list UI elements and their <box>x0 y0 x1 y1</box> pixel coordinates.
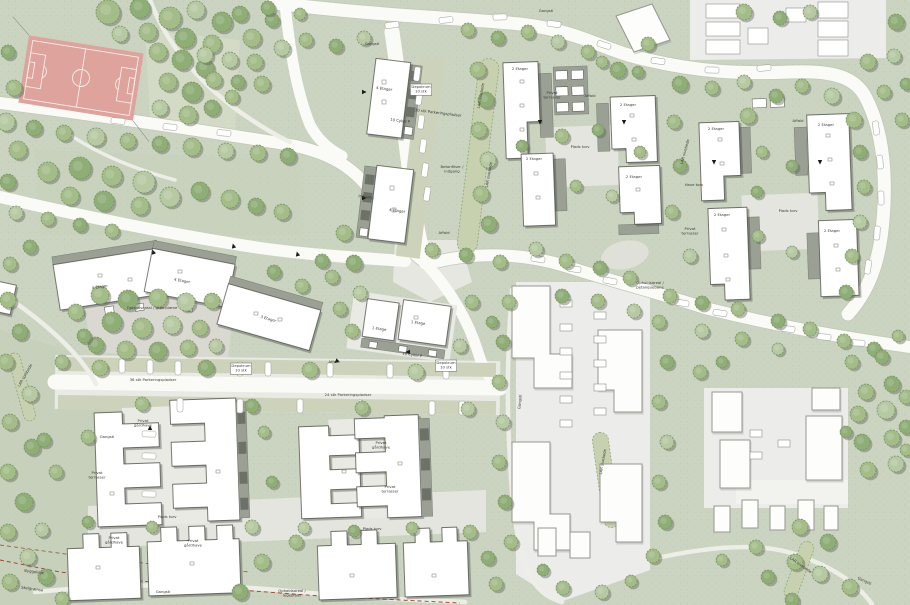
roof-panel <box>706 4 740 18</box>
roof-panel <box>560 324 572 331</box>
roof-panel <box>96 566 100 569</box>
roof-panel <box>520 104 524 107</box>
svg-text:Affald: Affald <box>792 118 804 123</box>
shed <box>572 86 584 95</box>
car <box>817 334 831 341</box>
car <box>177 398 183 412</box>
car <box>175 361 181 375</box>
roof-panel <box>826 134 830 137</box>
shed <box>359 228 368 237</box>
map-label: 2 Etager <box>620 102 637 107</box>
outline-building <box>806 416 842 480</box>
roof-panel <box>560 420 572 427</box>
car <box>142 453 156 459</box>
building-wing <box>553 159 567 211</box>
building-wing <box>619 223 659 234</box>
map-label: Gangsti <box>156 589 171 594</box>
car <box>237 399 243 413</box>
map-label: 2 Etager <box>512 66 529 71</box>
outline-building <box>712 392 742 432</box>
map-label: 24 stk Parkeringspladser <box>325 392 372 397</box>
roof-panel <box>706 22 740 36</box>
roof-panel <box>818 40 848 56</box>
car <box>874 226 881 240</box>
svg-text:Plads torv: Plads torv <box>158 514 178 519</box>
roof-panel <box>594 360 606 367</box>
car <box>142 431 156 437</box>
svg-text:2 Etager: 2 Etager <box>818 122 835 127</box>
roof-panel <box>720 162 724 165</box>
map-label: Opholdsareal /petanquebane <box>636 280 664 289</box>
outline-building-small <box>742 500 758 528</box>
map-label: 2 Etager <box>708 126 725 131</box>
roof-panel <box>534 172 538 175</box>
map-label: Gangsti <box>539 8 554 13</box>
building <box>94 411 162 527</box>
roof-panel <box>254 312 258 315</box>
car <box>387 364 393 378</box>
roof-panel <box>350 574 354 577</box>
building <box>354 415 422 519</box>
map-label: 36 stk Parkeringspladser <box>130 377 177 382</box>
svg-text:Affald: Affald <box>584 93 596 98</box>
svg-text:36 stk Parkeringspladser: 36 stk Parkeringspladser <box>130 377 177 382</box>
car <box>493 14 507 20</box>
car <box>877 155 884 169</box>
map-label: Plads torv <box>158 514 178 519</box>
roof-panel <box>718 138 722 141</box>
map-label: Opholdsareal / grøn plæne <box>127 305 178 310</box>
svg-text:Gangsti: Gangsti <box>100 434 115 439</box>
car <box>217 130 231 137</box>
map-label: 2 Etager <box>714 212 731 217</box>
svg-text:Gangsti: Gangsti <box>365 41 380 46</box>
svg-text:2 Etager: 2 Etager <box>626 174 643 179</box>
map-label: 2 Etager <box>818 122 835 127</box>
shed <box>404 126 413 135</box>
roof-panel <box>398 462 402 465</box>
map-label: Have torv <box>685 182 704 187</box>
svg-text:2 Etager: 2 Etager <box>526 156 543 161</box>
car <box>297 399 303 413</box>
roof-panel <box>190 562 194 565</box>
map-label: Affald <box>584 93 596 98</box>
street-bottom-parking <box>55 382 500 388</box>
outline-building-small <box>824 506 838 530</box>
car <box>757 65 771 72</box>
car <box>265 362 271 376</box>
roof-panel <box>382 80 386 84</box>
roof-panel <box>836 268 840 271</box>
svg-text:2 Etager: 2 Etager <box>824 228 841 233</box>
roof-panel <box>818 2 848 18</box>
map-label: Affald <box>328 359 340 364</box>
roof-panel <box>594 408 606 415</box>
svg-text:Have torv: Have torv <box>685 182 704 187</box>
roof-panel <box>830 182 834 185</box>
roof-panel <box>828 158 832 161</box>
roof-panel <box>722 228 726 231</box>
roof-panel <box>560 396 572 403</box>
svg-text:2 Etager: 2 Etager <box>512 66 529 71</box>
shed <box>556 103 568 112</box>
map-label: 2 Etager <box>824 228 841 233</box>
car <box>705 67 719 73</box>
car <box>439 16 453 23</box>
outline-building <box>720 440 750 488</box>
roof-panel <box>342 470 346 473</box>
building-combs-left <box>94 398 250 527</box>
building <box>147 525 241 596</box>
roof-panel <box>390 186 394 190</box>
map-label: Plads torv <box>363 526 383 531</box>
roof-panel <box>128 278 132 281</box>
roof-panel <box>216 470 220 473</box>
svg-text:2 Etager: 2 Etager <box>620 102 637 107</box>
svg-text:Plads torv: Plads torv <box>779 208 799 213</box>
svg-text:Affald: Affald <box>328 359 340 364</box>
shed <box>571 70 583 79</box>
roof-panel <box>520 128 524 131</box>
car <box>142 491 156 497</box>
roof-panel <box>724 254 728 257</box>
roof-panel <box>278 318 282 321</box>
car <box>327 363 333 377</box>
roof-panel <box>748 28 768 44</box>
svg-text:2 Etager: 2 Etager <box>714 212 731 217</box>
roof-panel <box>536 196 540 199</box>
map-label: Affald <box>438 230 450 235</box>
svg-text:Opholdsareal / grøn plæne: Opholdsareal / grøn plæne <box>127 305 178 310</box>
site-plan-canvas: GangstiGangstiGangstiGangstiGangstiGangs… <box>0 0 910 605</box>
outline-building <box>812 388 840 410</box>
roof-panel <box>594 384 606 391</box>
svg-text:2 Etager: 2 Etager <box>708 126 725 131</box>
roof-panel <box>726 278 730 281</box>
outline-building-small <box>770 506 785 530</box>
car <box>119 359 125 373</box>
roof-panel <box>432 574 436 577</box>
shed <box>428 350 437 357</box>
map-label: Gangsti <box>100 434 115 439</box>
map-label: Plads torv <box>571 144 591 149</box>
roof-panel <box>630 114 634 117</box>
car <box>111 117 125 124</box>
svg-text:Plads torv: Plads torv <box>363 526 383 531</box>
roof-panel <box>818 21 848 37</box>
shed <box>752 98 766 107</box>
roof-panel <box>750 452 762 459</box>
outline-building-small <box>570 532 590 558</box>
svg-text:24 stk Parkeringspladser: 24 stk Parkeringspladser <box>325 392 372 397</box>
building <box>170 398 240 522</box>
roof-panel <box>594 336 606 343</box>
roof-panel <box>594 312 606 319</box>
map-label: 2 Etager <box>626 174 643 179</box>
building <box>299 425 362 519</box>
site-plan-svg: GangstiGangstiGangstiGangstiGangstiGangs… <box>0 0 910 605</box>
shed <box>369 341 378 348</box>
roof-panel <box>560 348 572 355</box>
svg-text:Opholdsareal /petanquebane: Opholdsareal /petanquebane <box>636 280 664 289</box>
map-label: Gangsti <box>365 41 380 46</box>
roof-panel <box>632 138 636 141</box>
shed <box>572 102 584 111</box>
building-wing <box>538 73 553 137</box>
building <box>362 299 399 341</box>
outline-building-small <box>714 506 730 532</box>
car <box>429 401 435 415</box>
svg-text:Affald: Affald <box>438 230 450 235</box>
building-combs-center <box>298 414 432 521</box>
map-label: Depotrum10 stk <box>435 360 456 371</box>
map-label: Depotrum10 stk <box>230 363 251 374</box>
roof-panel <box>706 40 740 54</box>
roof-panel <box>834 244 838 247</box>
outline-building-small <box>538 528 556 556</box>
car <box>878 191 884 205</box>
roof-panel <box>560 372 572 379</box>
map-label: 2 Etager <box>526 156 543 161</box>
shed <box>555 71 567 80</box>
map-label: Plads torv <box>779 208 799 213</box>
roof-panel <box>98 274 102 277</box>
svg-text:Plads torv: Plads torv <box>571 144 591 149</box>
roof-panel <box>750 430 762 437</box>
building <box>521 153 555 226</box>
roof-panel <box>778 440 790 447</box>
roof-panel <box>520 80 524 83</box>
roof-panel <box>178 270 182 273</box>
roof-panel <box>382 100 386 104</box>
roof-panel <box>636 188 640 191</box>
map-label: Depotrum10 stk <box>410 84 431 95</box>
car <box>163 124 177 131</box>
svg-text:Gangsti: Gangsti <box>539 8 554 13</box>
car <box>147 360 153 374</box>
roof-panel <box>110 492 114 495</box>
map-label: Affald <box>792 118 804 123</box>
svg-text:Gangsti: Gangsti <box>156 589 171 594</box>
